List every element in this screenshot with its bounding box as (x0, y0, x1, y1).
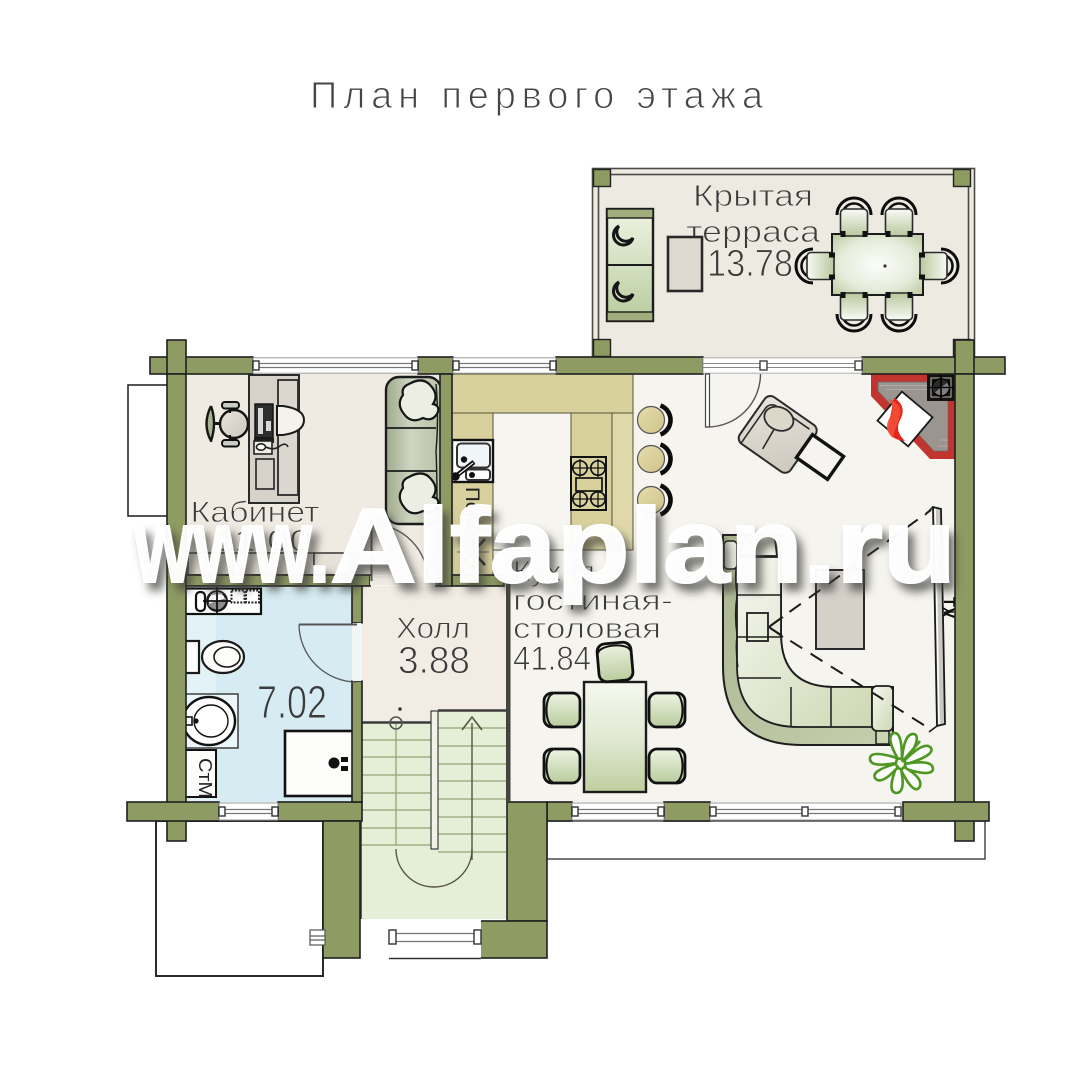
svg-text:13.78: 13.78 (707, 243, 793, 285)
svg-text:Alfaplan.ru: Alfaplan.ru (330, 487, 956, 605)
svg-text:План первого этажа: План первого этажа (310, 75, 770, 117)
svg-text:7.02: 7.02 (257, 676, 327, 728)
svg-text:Крытая: Крытая (693, 178, 813, 213)
svg-text:3.88: 3.88 (398, 640, 470, 682)
svg-text:www.: www. (133, 487, 330, 605)
svg-text:41.84: 41.84 (513, 640, 591, 678)
svg-text:СтМ: СтМ (195, 758, 215, 798)
